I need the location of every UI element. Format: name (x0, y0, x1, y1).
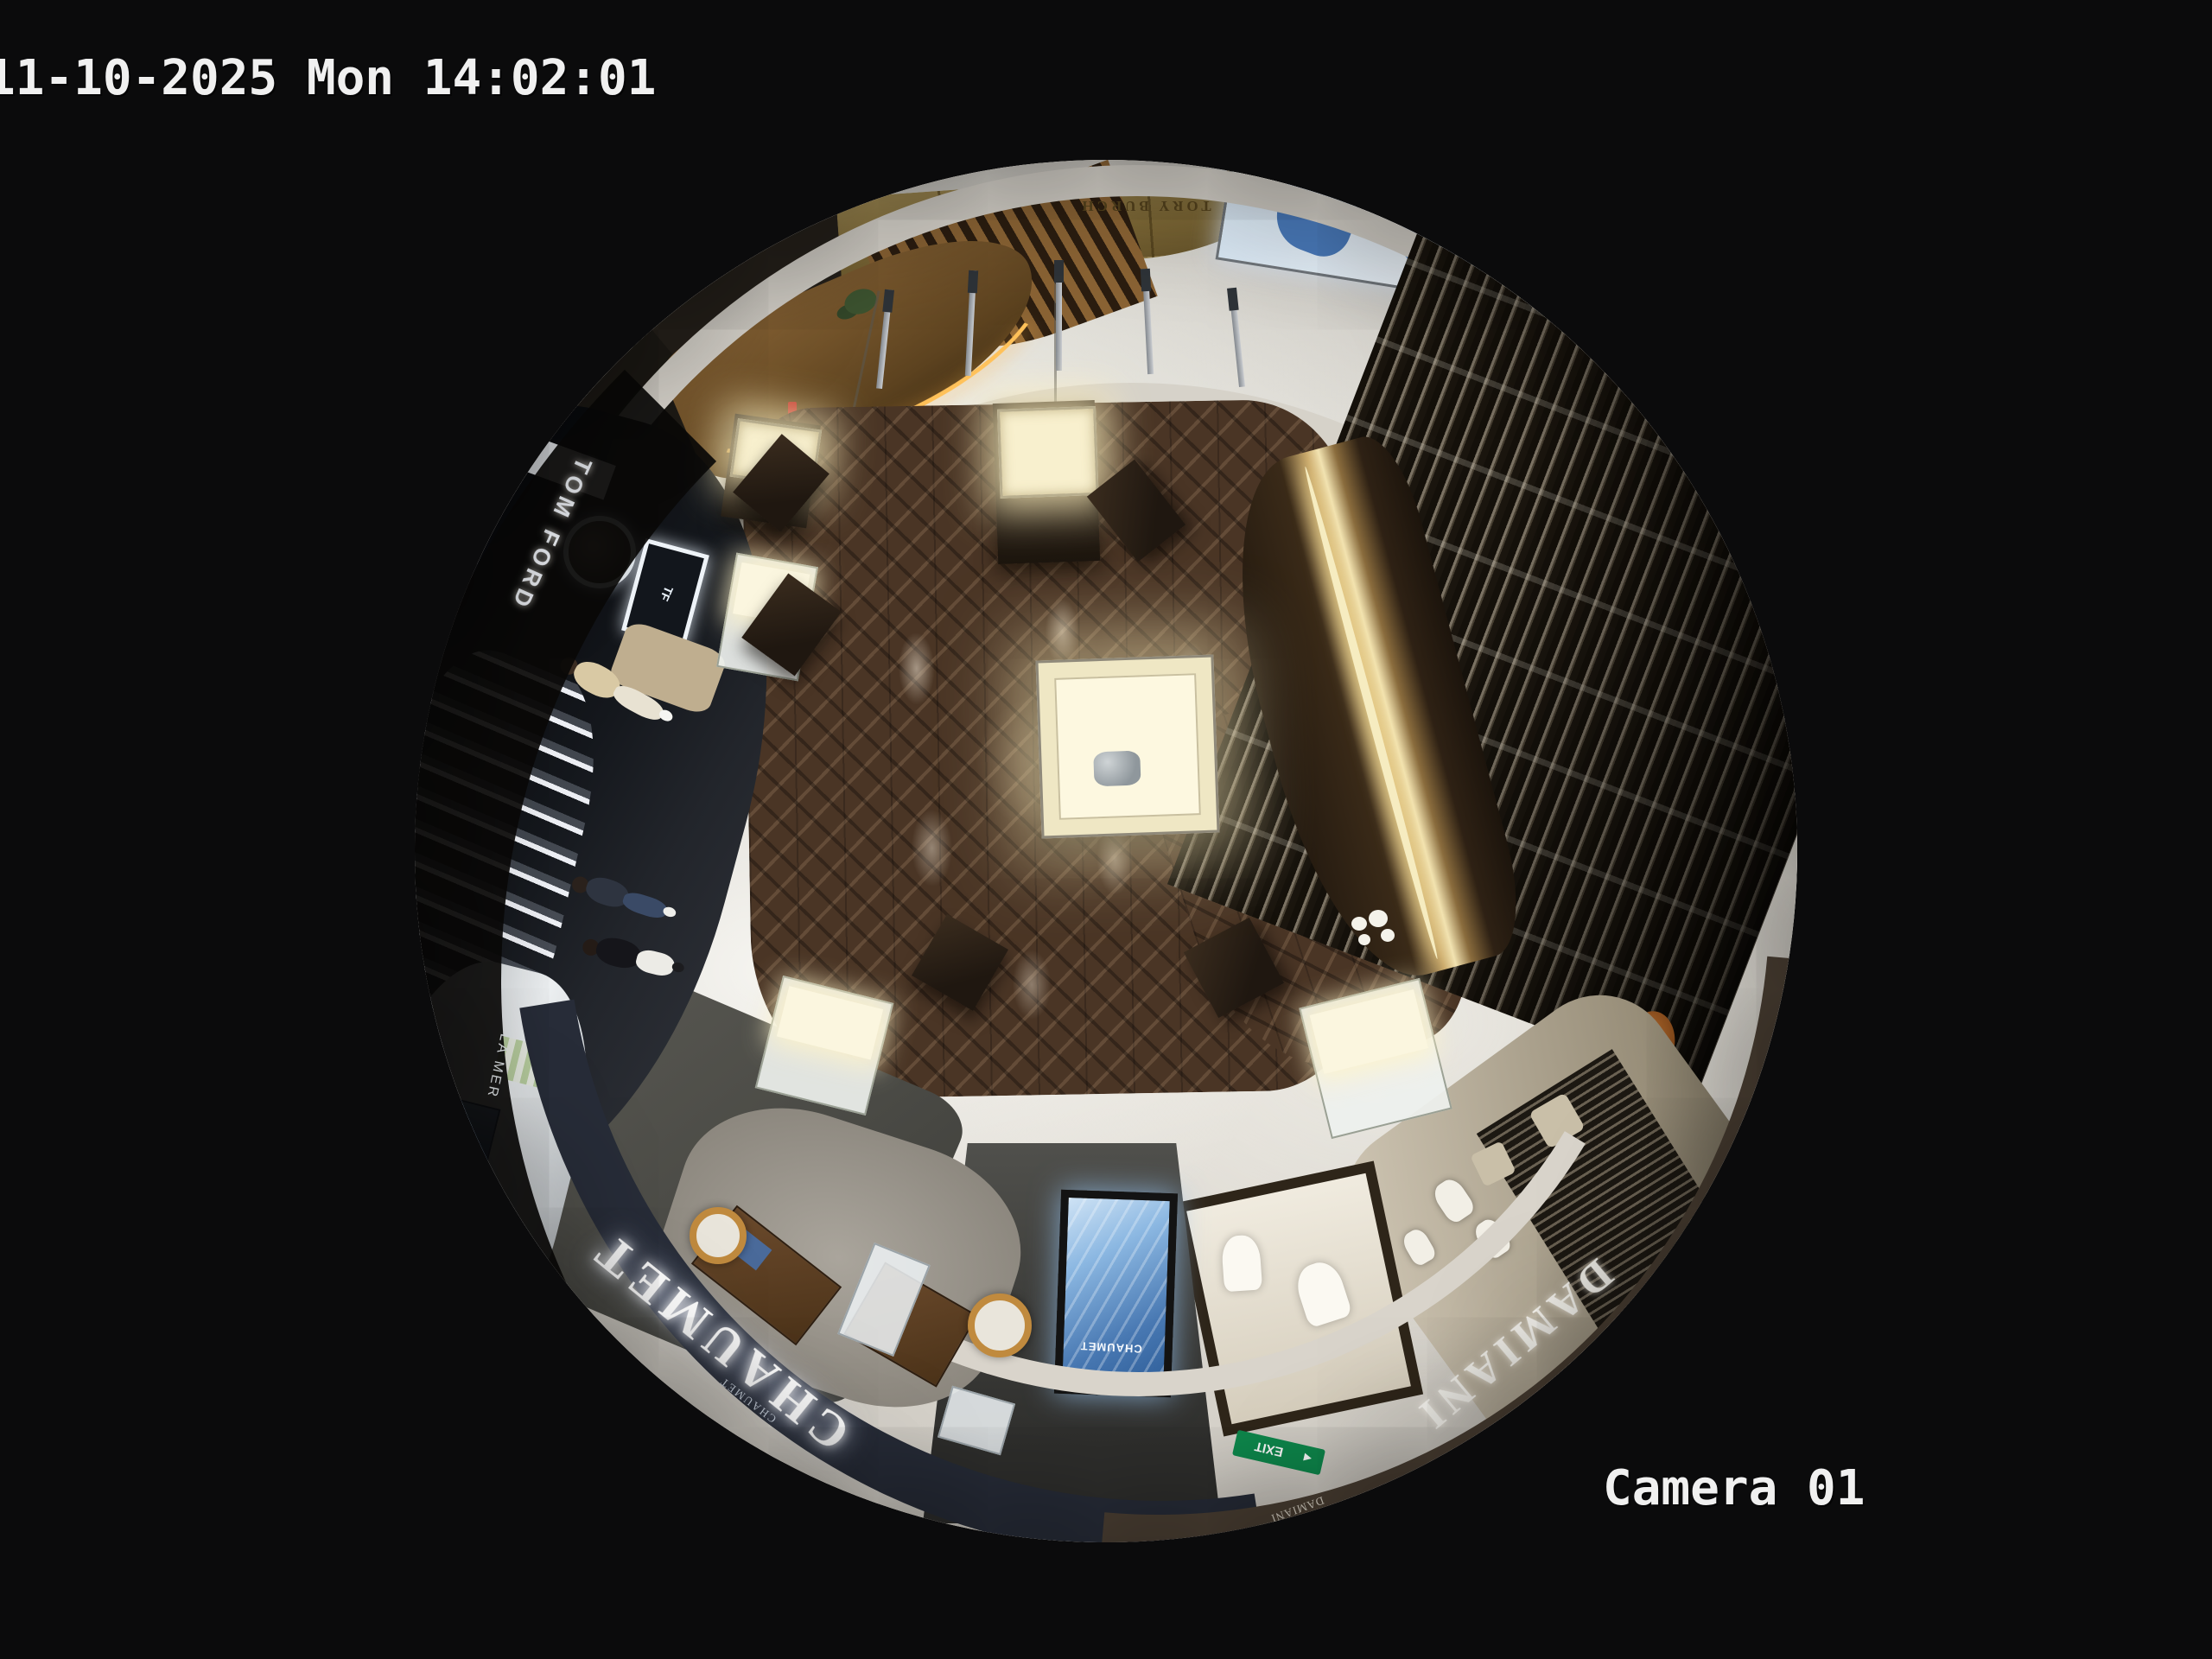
timestamp-overlay: 11-10-2025 Mon 14:02:01 (0, 50, 656, 106)
camera-label: Camera 01 (1603, 1460, 1865, 1516)
fisheye-view: TORY BURCH TOM FORD TF LA MER CHAUMET CH… (415, 160, 1797, 1542)
cctv-frame: 11-10-2025 Mon 14:02:01 (0, 0, 2212, 1659)
lens-vignette (415, 160, 1797, 1542)
